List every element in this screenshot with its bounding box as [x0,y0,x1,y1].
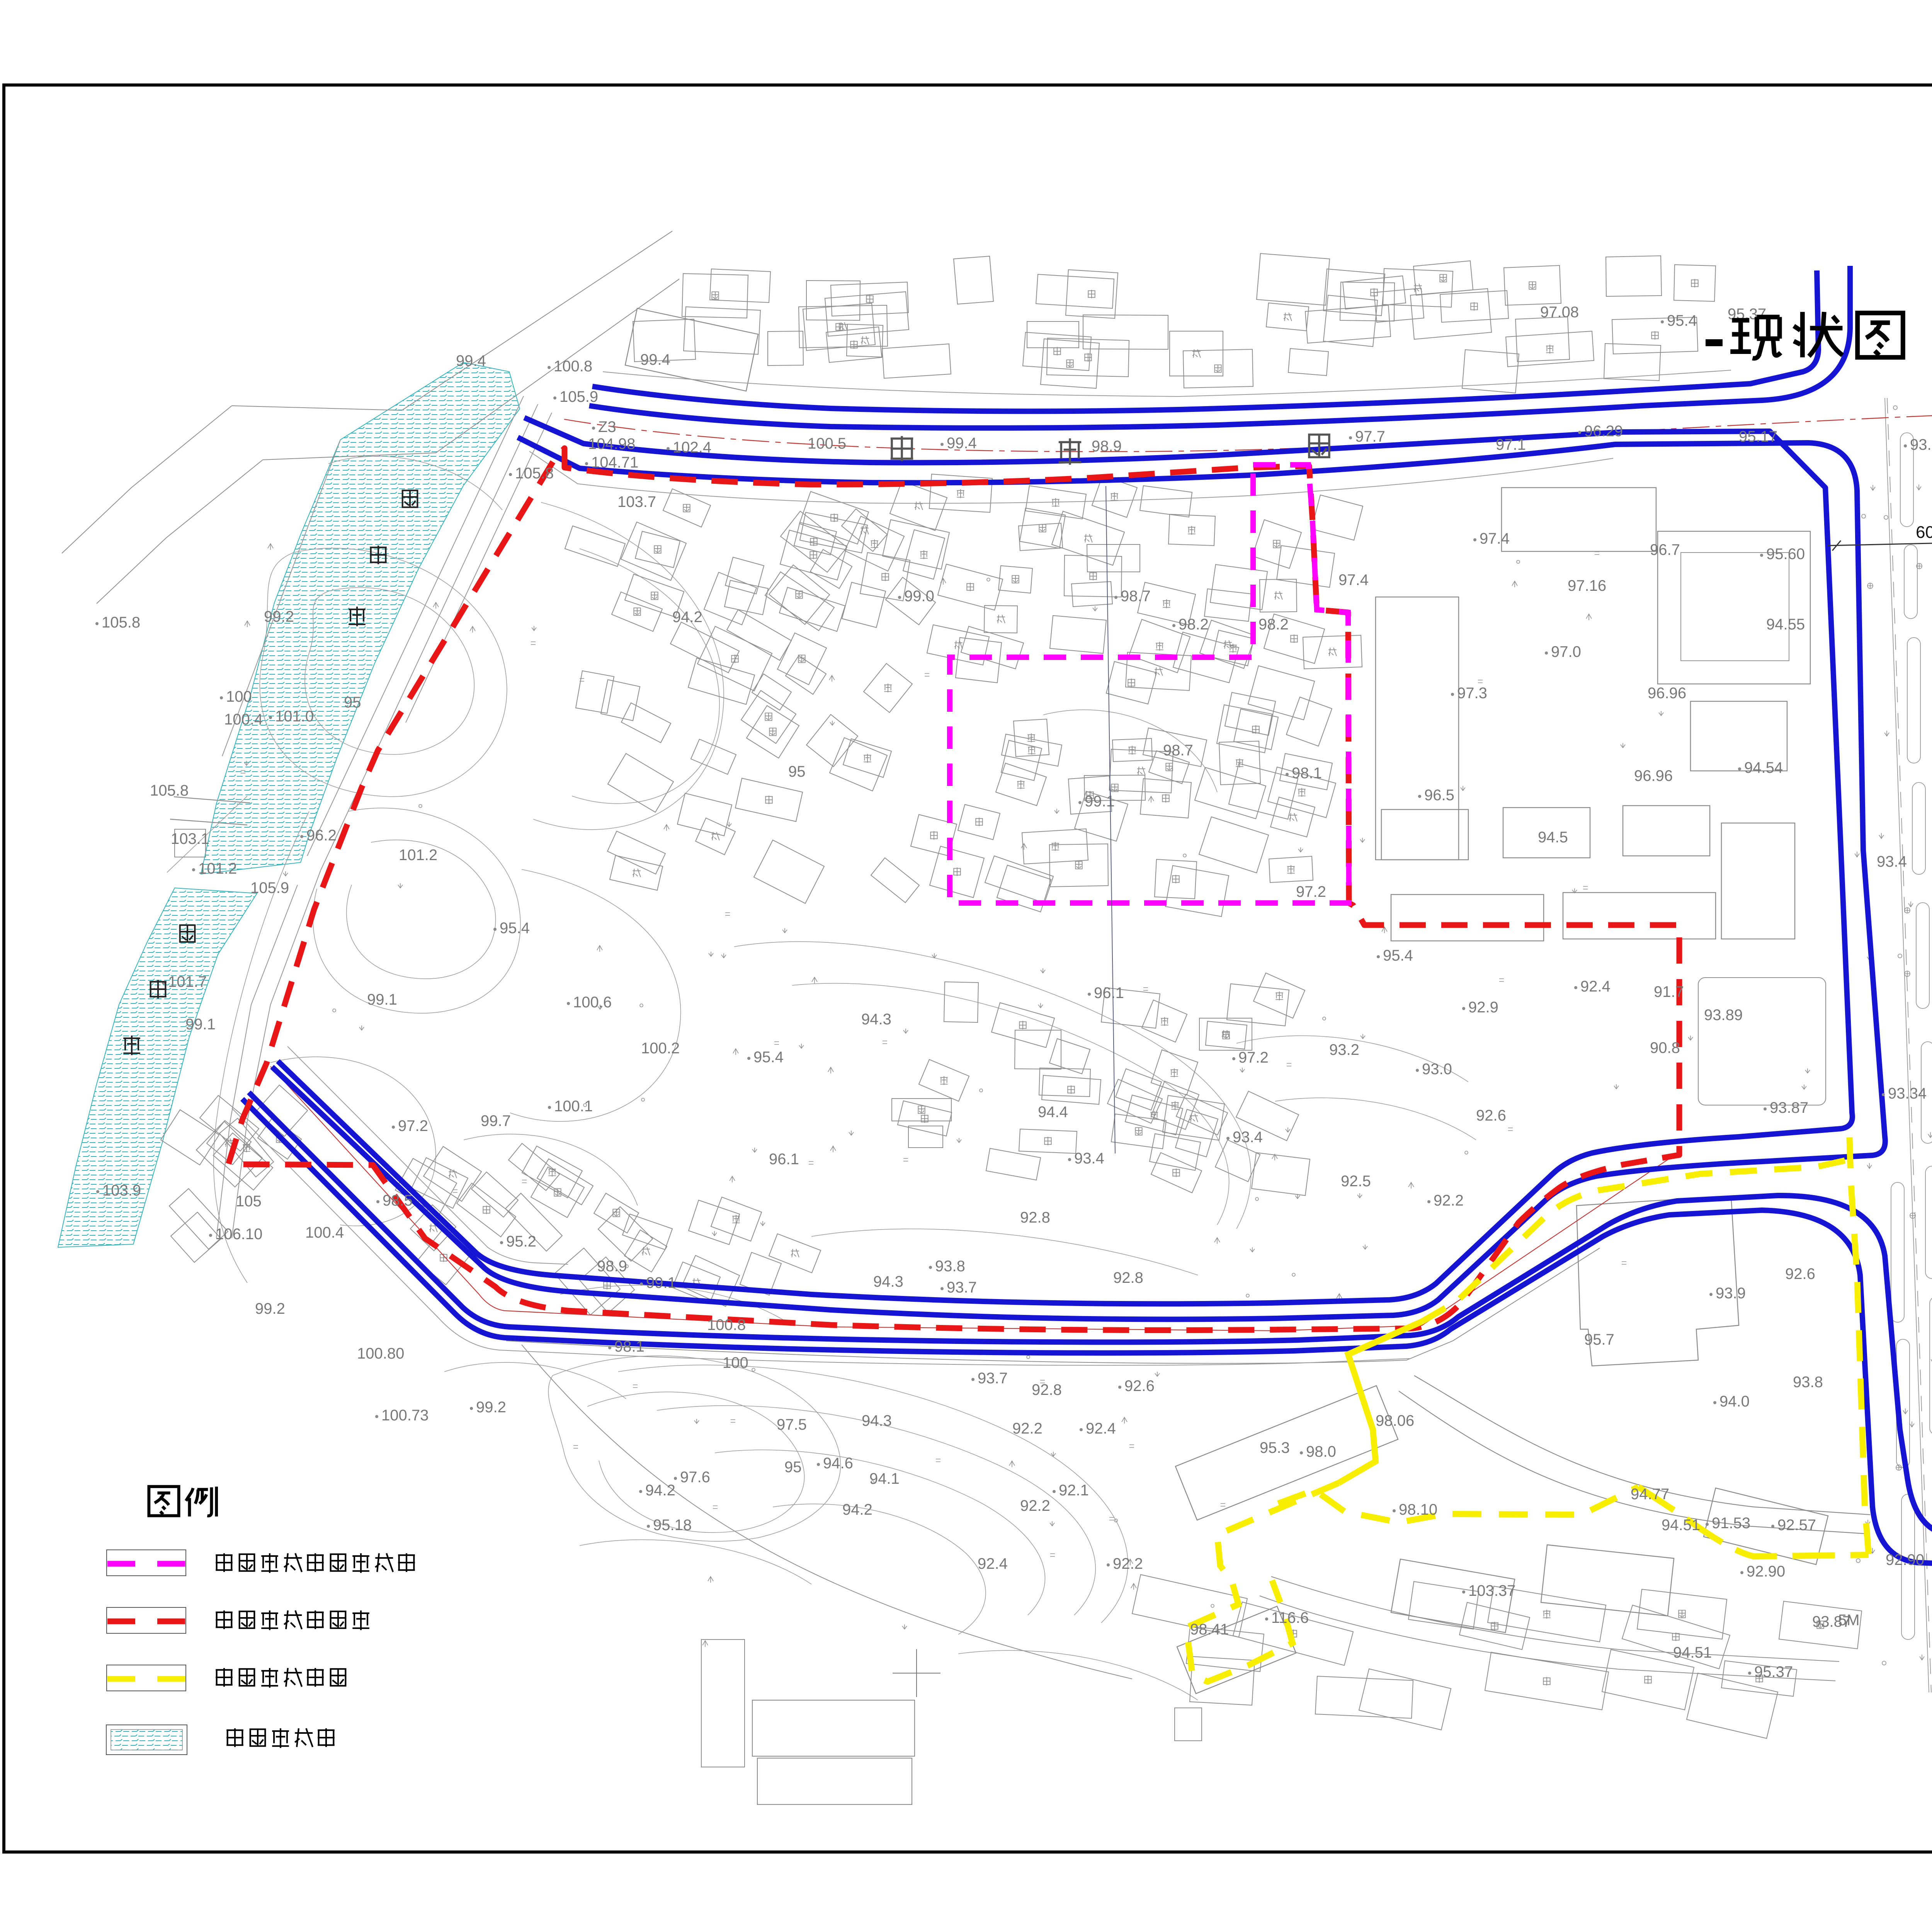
svg-text:96.5: 96.5 [1424,787,1454,804]
svg-text:105.8: 105.8 [102,614,140,631]
svg-text:97.3: 97.3 [1457,685,1487,702]
svg-text:92.1: 92.1 [1059,1482,1089,1499]
svg-text:94.51: 94.51 [1673,1644,1712,1661]
svg-text:97.6: 97.6 [680,1469,710,1486]
svg-text:100.80: 100.80 [357,1345,404,1362]
svg-text:96.1: 96.1 [1094,985,1124,1002]
svg-text:94.2: 94.2 [842,1501,872,1518]
svg-text:96.96: 96.96 [1648,685,1686,702]
svg-text:94.3: 94.3 [873,1273,903,1290]
svg-text:94.2: 94.2 [672,609,702,626]
svg-text:99.1: 99.1 [367,991,397,1008]
svg-text:91.53: 91.53 [1712,1515,1750,1532]
svg-text:92.5: 92.5 [1341,1173,1371,1190]
svg-text:100.4: 100.4 [224,711,263,728]
svg-text:106.10: 106.10 [215,1226,262,1243]
svg-text:5M: 5M [1838,1612,1860,1629]
svg-text:99.1: 99.1 [185,1016,216,1033]
svg-text:92.90: 92.90 [1747,1563,1785,1580]
svg-text:97.16: 97.16 [1568,577,1606,594]
svg-text:101.2: 101.2 [198,860,237,877]
svg-text:98.1: 98.1 [1292,765,1322,782]
svg-text:94.4: 94.4 [1038,1104,1068,1121]
svg-text:94.0: 94.0 [1719,1393,1750,1410]
svg-text:100: 100 [226,688,252,705]
svg-text:103.7: 103.7 [617,493,656,510]
svg-text:98.9: 98.9 [1092,438,1122,455]
svg-text:95.4: 95.4 [1383,947,1413,964]
svg-text:100.73: 100.73 [381,1407,429,1424]
svg-text:98.7: 98.7 [1163,742,1193,759]
svg-text:95.3: 95.3 [1260,1439,1290,1456]
svg-text:92.4: 92.4 [978,1555,1008,1572]
svg-text:103.1: 103.1 [171,830,209,847]
svg-text:93.34: 93.34 [1888,1085,1927,1102]
svg-text:96.1: 96.1 [769,1151,799,1168]
svg-text:99.2: 99.2 [255,1300,285,1317]
svg-text:101.7: 101.7 [168,973,207,990]
svg-text:95: 95 [784,1459,802,1476]
svg-text:94.6: 94.6 [823,1455,853,1472]
svg-text:97.0: 97.0 [1551,643,1581,660]
svg-text:98.5: 98.5 [383,1192,413,1209]
svg-text:100.1: 100.1 [554,1098,593,1115]
svg-text:95: 95 [788,763,806,780]
svg-text:93.29: 93.29 [1910,436,1932,453]
svg-text:92.6: 92.6 [1124,1378,1155,1395]
svg-text:96.96: 96.96 [1634,767,1673,784]
svg-text:92.6: 92.6 [1476,1107,1506,1124]
svg-text:99.4: 99.4 [947,435,977,452]
svg-text:100.4: 100.4 [305,1224,344,1241]
svg-text:92.57: 92.57 [1777,1517,1816,1534]
svg-text:99.2: 99.2 [264,608,294,625]
svg-text:103.9: 103.9 [102,1182,141,1199]
svg-text:97.4: 97.4 [1480,530,1510,547]
svg-text:97.2: 97.2 [1238,1049,1269,1066]
svg-text:94.51: 94.51 [1662,1517,1700,1534]
svg-text:60m: 60m [1916,523,1932,542]
svg-text:96.29: 96.29 [1584,423,1623,440]
svg-text:100.6: 100.6 [573,994,612,1011]
svg-text:98.41: 98.41 [1190,1621,1229,1638]
svg-text:97.2: 97.2 [398,1117,428,1134]
svg-text:105.8: 105.8 [150,782,189,799]
svg-text:103.37: 103.37 [1468,1582,1515,1599]
svg-text:93.9: 93.9 [1716,1285,1746,1302]
svg-text:93.4: 93.4 [1074,1150,1104,1167]
svg-text:93.7: 93.7 [978,1370,1008,1387]
svg-text:92.4: 92.4 [1580,978,1611,995]
svg-text:99.4: 99.4 [640,351,670,368]
svg-text:95.37: 95.37 [1754,1663,1793,1680]
svg-text:95.18: 95.18 [653,1517,692,1534]
svg-text:92.8: 92.8 [1020,1209,1050,1226]
svg-text:93.0: 93.0 [1422,1061,1452,1078]
svg-text:Z3: Z3 [598,418,616,435]
svg-text:92.2: 92.2 [1434,1192,1464,1209]
svg-text:98.0: 98.0 [1306,1443,1336,1460]
svg-text:97.08: 97.08 [1540,304,1579,321]
svg-text:100.5: 100.5 [808,435,846,452]
svg-text:93.7: 93.7 [947,1279,977,1296]
svg-text:98.9: 98.9 [597,1258,627,1275]
svg-text:92.2: 92.2 [1020,1497,1050,1514]
svg-text:99.1: 99.1 [646,1274,676,1291]
svg-text:105: 105 [236,1193,262,1210]
svg-text:96.7: 96.7 [1650,541,1680,558]
svg-text:95.7: 95.7 [1584,1331,1614,1348]
svg-text:105.9: 105.9 [250,879,289,896]
svg-text:98.2: 98.2 [1259,616,1289,633]
svg-text:94.54: 94.54 [1744,759,1783,776]
svg-text:93.4: 93.4 [1233,1129,1263,1146]
svg-text:98.06: 98.06 [1376,1412,1414,1429]
svg-text:93.87: 93.87 [1770,1099,1808,1116]
svg-text:97.4: 97.4 [1338,571,1369,588]
svg-text:92.6: 92.6 [1785,1265,1815,1282]
svg-text:95.4: 95.4 [1667,312,1697,329]
svg-text:97.2: 97.2 [1296,883,1326,900]
svg-text:91.7: 91.7 [1654,983,1684,1000]
svg-text:98.2: 98.2 [1179,616,1209,633]
svg-text:94.77: 94.77 [1631,1486,1669,1503]
svg-text:92.4: 92.4 [1086,1420,1116,1437]
svg-text:99.0: 99.0 [904,588,934,605]
svg-text:97.5: 97.5 [777,1416,807,1433]
svg-text:93.2: 93.2 [1329,1041,1359,1058]
svg-text:94.3: 94.3 [862,1412,892,1429]
svg-text:98.10: 98.10 [1399,1501,1437,1518]
svg-text:105.9: 105.9 [560,388,598,405]
svg-text:99.2: 99.2 [476,1399,506,1416]
svg-text:116.6: 116.6 [1271,1609,1309,1626]
svg-text:101.2: 101.2 [399,847,437,864]
svg-text:92.9: 92.9 [1468,999,1498,1016]
svg-text:99.4: 99.4 [456,352,486,369]
svg-text:100: 100 [723,1354,748,1371]
svg-text:90.8: 90.8 [1650,1039,1680,1056]
svg-text:92.8: 92.8 [1032,1381,1062,1398]
svg-text:95: 95 [344,694,361,711]
svg-text:93.4: 93.4 [1877,853,1907,870]
svg-text:104.98: 104.98 [588,435,635,452]
svg-text:95.17: 95.17 [1739,428,1777,445]
svg-text:94.55: 94.55 [1766,616,1805,633]
svg-text:94.2: 94.2 [645,1482,675,1499]
svg-text:98.7: 98.7 [1121,588,1151,605]
svg-text:97.7: 97.7 [1355,428,1385,445]
svg-text:93.8: 93.8 [1793,1374,1823,1391]
svg-text:93.8: 93.8 [935,1258,965,1275]
svg-text:95.60: 95.60 [1766,546,1805,563]
svg-text:93.89: 93.89 [1704,1007,1743,1024]
svg-text:94.3: 94.3 [861,1011,891,1028]
svg-text:94.5: 94.5 [1538,829,1568,846]
svg-text:94.1: 94.1 [869,1470,900,1487]
svg-text:99.7: 99.7 [481,1112,511,1129]
svg-text:104.71: 104.71 [591,454,638,471]
svg-text:97.1: 97.1 [1496,436,1526,453]
svg-text:102.4: 102.4 [673,439,711,456]
svg-text:100.8: 100.8 [554,358,592,375]
svg-text:98.1: 98.1 [614,1338,645,1355]
svg-text:92.2: 92.2 [1012,1420,1043,1437]
svg-text:96.2: 96.2 [306,827,337,844]
svg-text:95.4: 95.4 [500,920,530,937]
svg-text:92.2: 92.2 [1113,1555,1143,1572]
svg-text:101.0: 101.0 [275,708,314,725]
svg-text:100.2: 100.2 [641,1040,680,1057]
svg-text:92.8: 92.8 [1113,1269,1143,1286]
svg-text:92.90: 92.90 [1886,1551,1924,1568]
svg-text:95.4: 95.4 [753,1049,784,1066]
svg-text:105.8: 105.8 [515,465,554,482]
svg-text:95.2: 95.2 [506,1233,536,1250]
svg-text:100.8: 100.8 [707,1316,746,1333]
